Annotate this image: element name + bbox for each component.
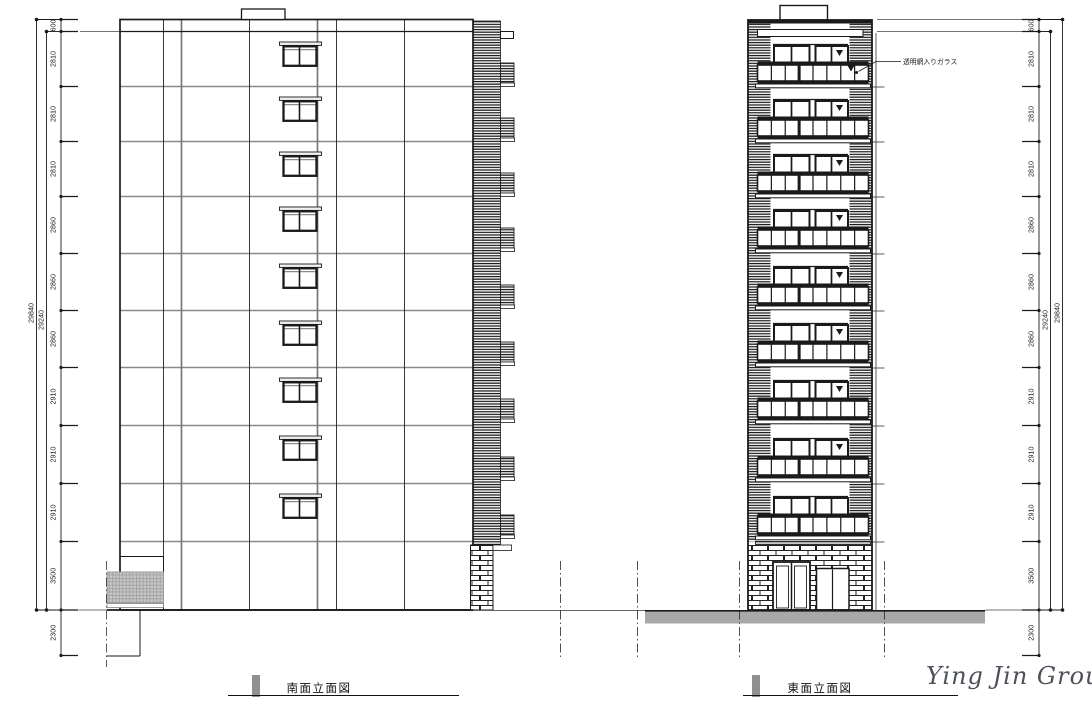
dim-label: 3500 [49,568,58,584]
pier-ledge [493,545,512,551]
dim-label: 2810 [1027,161,1036,177]
drawing-canvas: 6002810281028102860286028602910291029103… [0,0,1092,712]
dim-label: 3500 [1027,568,1036,584]
south-elevation-title: 南面立面図 [259,680,379,696]
dim-label: 2300 [49,625,58,641]
dim-label: 2860 [49,274,58,290]
side-wall-hatch [474,21,501,545]
window-canopy [280,207,322,210]
dim-label: 600 [1027,20,1036,32]
dim-total-label: 29840 [27,303,36,323]
balcony-slab [756,306,871,310]
window-canopy [280,494,322,497]
dim-end-dot [59,482,62,485]
dim-end-dot [1037,366,1040,369]
dim-end-dot [1037,140,1040,143]
parapet-inner [758,30,864,37]
dim-end-dot [1037,252,1040,255]
entrance-step [107,604,164,608]
dim-end-dot [59,366,62,369]
dim-end-dot [59,540,62,543]
dim-total-label: 29240 [1041,310,1050,330]
window-canopy [280,97,322,100]
dim-end-dot [59,140,62,143]
dim-end-dot [59,654,62,657]
dim-label: 2860 [1027,217,1036,233]
dim-end-dot [59,424,62,427]
balcony-slab [756,139,871,143]
dim-label: 2860 [1027,331,1036,347]
east-title-underline [743,695,958,696]
balcony-slab-edge [501,535,515,539]
rooftop-penthouse [242,9,286,20]
dim-end-dot [1037,424,1040,427]
south-title-underline [228,695,459,696]
balcony-slab [756,363,871,367]
rooftop-penthouse [780,6,828,21]
balcony-slab-edge [501,362,515,366]
ground-band [645,611,985,624]
window-canopy [280,378,322,381]
dim-total-label: 29240 [37,310,46,330]
dim-end-dot [1037,654,1040,657]
balcony-side-rail [501,63,515,83]
dim-label: 2910 [1027,389,1036,405]
wired-glass-annotation: 透明網入りガラス [903,57,957,66]
dim-end-dot [1037,85,1040,88]
dim-end-dot [59,309,62,312]
balcony-side-rail [501,118,515,138]
window-canopy [280,264,322,267]
dim-end-dot [1037,195,1040,198]
dim-label: 2910 [49,505,58,521]
dim-label: 600 [49,20,58,32]
balcony-slab-edge [501,83,515,87]
dim-label: 2910 [49,389,58,405]
dim-label: 2810 [49,106,58,122]
east-elevation-title: 東面立面図 [760,680,880,696]
dim-end-dot [59,195,62,198]
balcony-slab [756,194,871,198]
dim-label: 2910 [1027,447,1036,463]
window-canopy [280,152,322,155]
dim-label: 2910 [49,447,58,463]
dim-label: 2860 [1027,274,1036,290]
dim-total-label: 29840 [1053,303,1062,323]
balcony-side-rail [501,515,515,535]
balcony-side-rail [501,228,515,248]
dim-label: 2910 [1027,505,1036,521]
leader-dot [855,71,858,74]
dim-label: 2810 [1027,51,1036,67]
balcony-slab [756,84,871,88]
balcony-slab-edge [501,419,515,423]
dim-end-dot [1037,540,1040,543]
entrance-mesh-screen [107,572,164,603]
balcony-slab [756,536,871,540]
balcony-slab-edge [501,477,515,481]
dim-label: 2810 [49,51,58,67]
balcony-slab-edge [501,193,515,197]
balcony-side-rail [501,399,515,419]
dim-end-dot [59,85,62,88]
balcony-slab [756,249,871,253]
balcony-slab-edge [501,305,515,309]
balcony-side-rail [501,285,515,305]
dim-end-dot [59,252,62,255]
window-canopy [280,321,322,324]
balcony-side-rail [501,173,515,193]
east-title-bar [752,675,760,697]
window-canopy [280,42,322,45]
brick-pier [471,545,494,610]
generated-linework: 6002810281028102860286028602910291029103… [27,6,1065,668]
company-signature: Ying Jin Group [926,662,1092,690]
window-canopy [280,436,322,439]
dim-label: 2810 [1027,106,1036,122]
dim-label: 2300 [1027,625,1036,641]
elevation-drawing: 6002810281028102860286028602910291029103… [0,0,1092,712]
balcony-slab [756,478,871,482]
dim-label: 2810 [49,161,58,177]
dim-label: 2860 [49,217,58,233]
dim-end-dot [1037,482,1040,485]
roof-ledge [501,32,514,39]
balcony-side-rail [501,342,515,362]
balcony-slab-edge [501,138,515,142]
dim-label: 2860 [49,331,58,347]
balcony-side-rail [501,457,515,477]
balcony-slab [756,420,871,424]
balcony-slab-edge [501,248,515,252]
